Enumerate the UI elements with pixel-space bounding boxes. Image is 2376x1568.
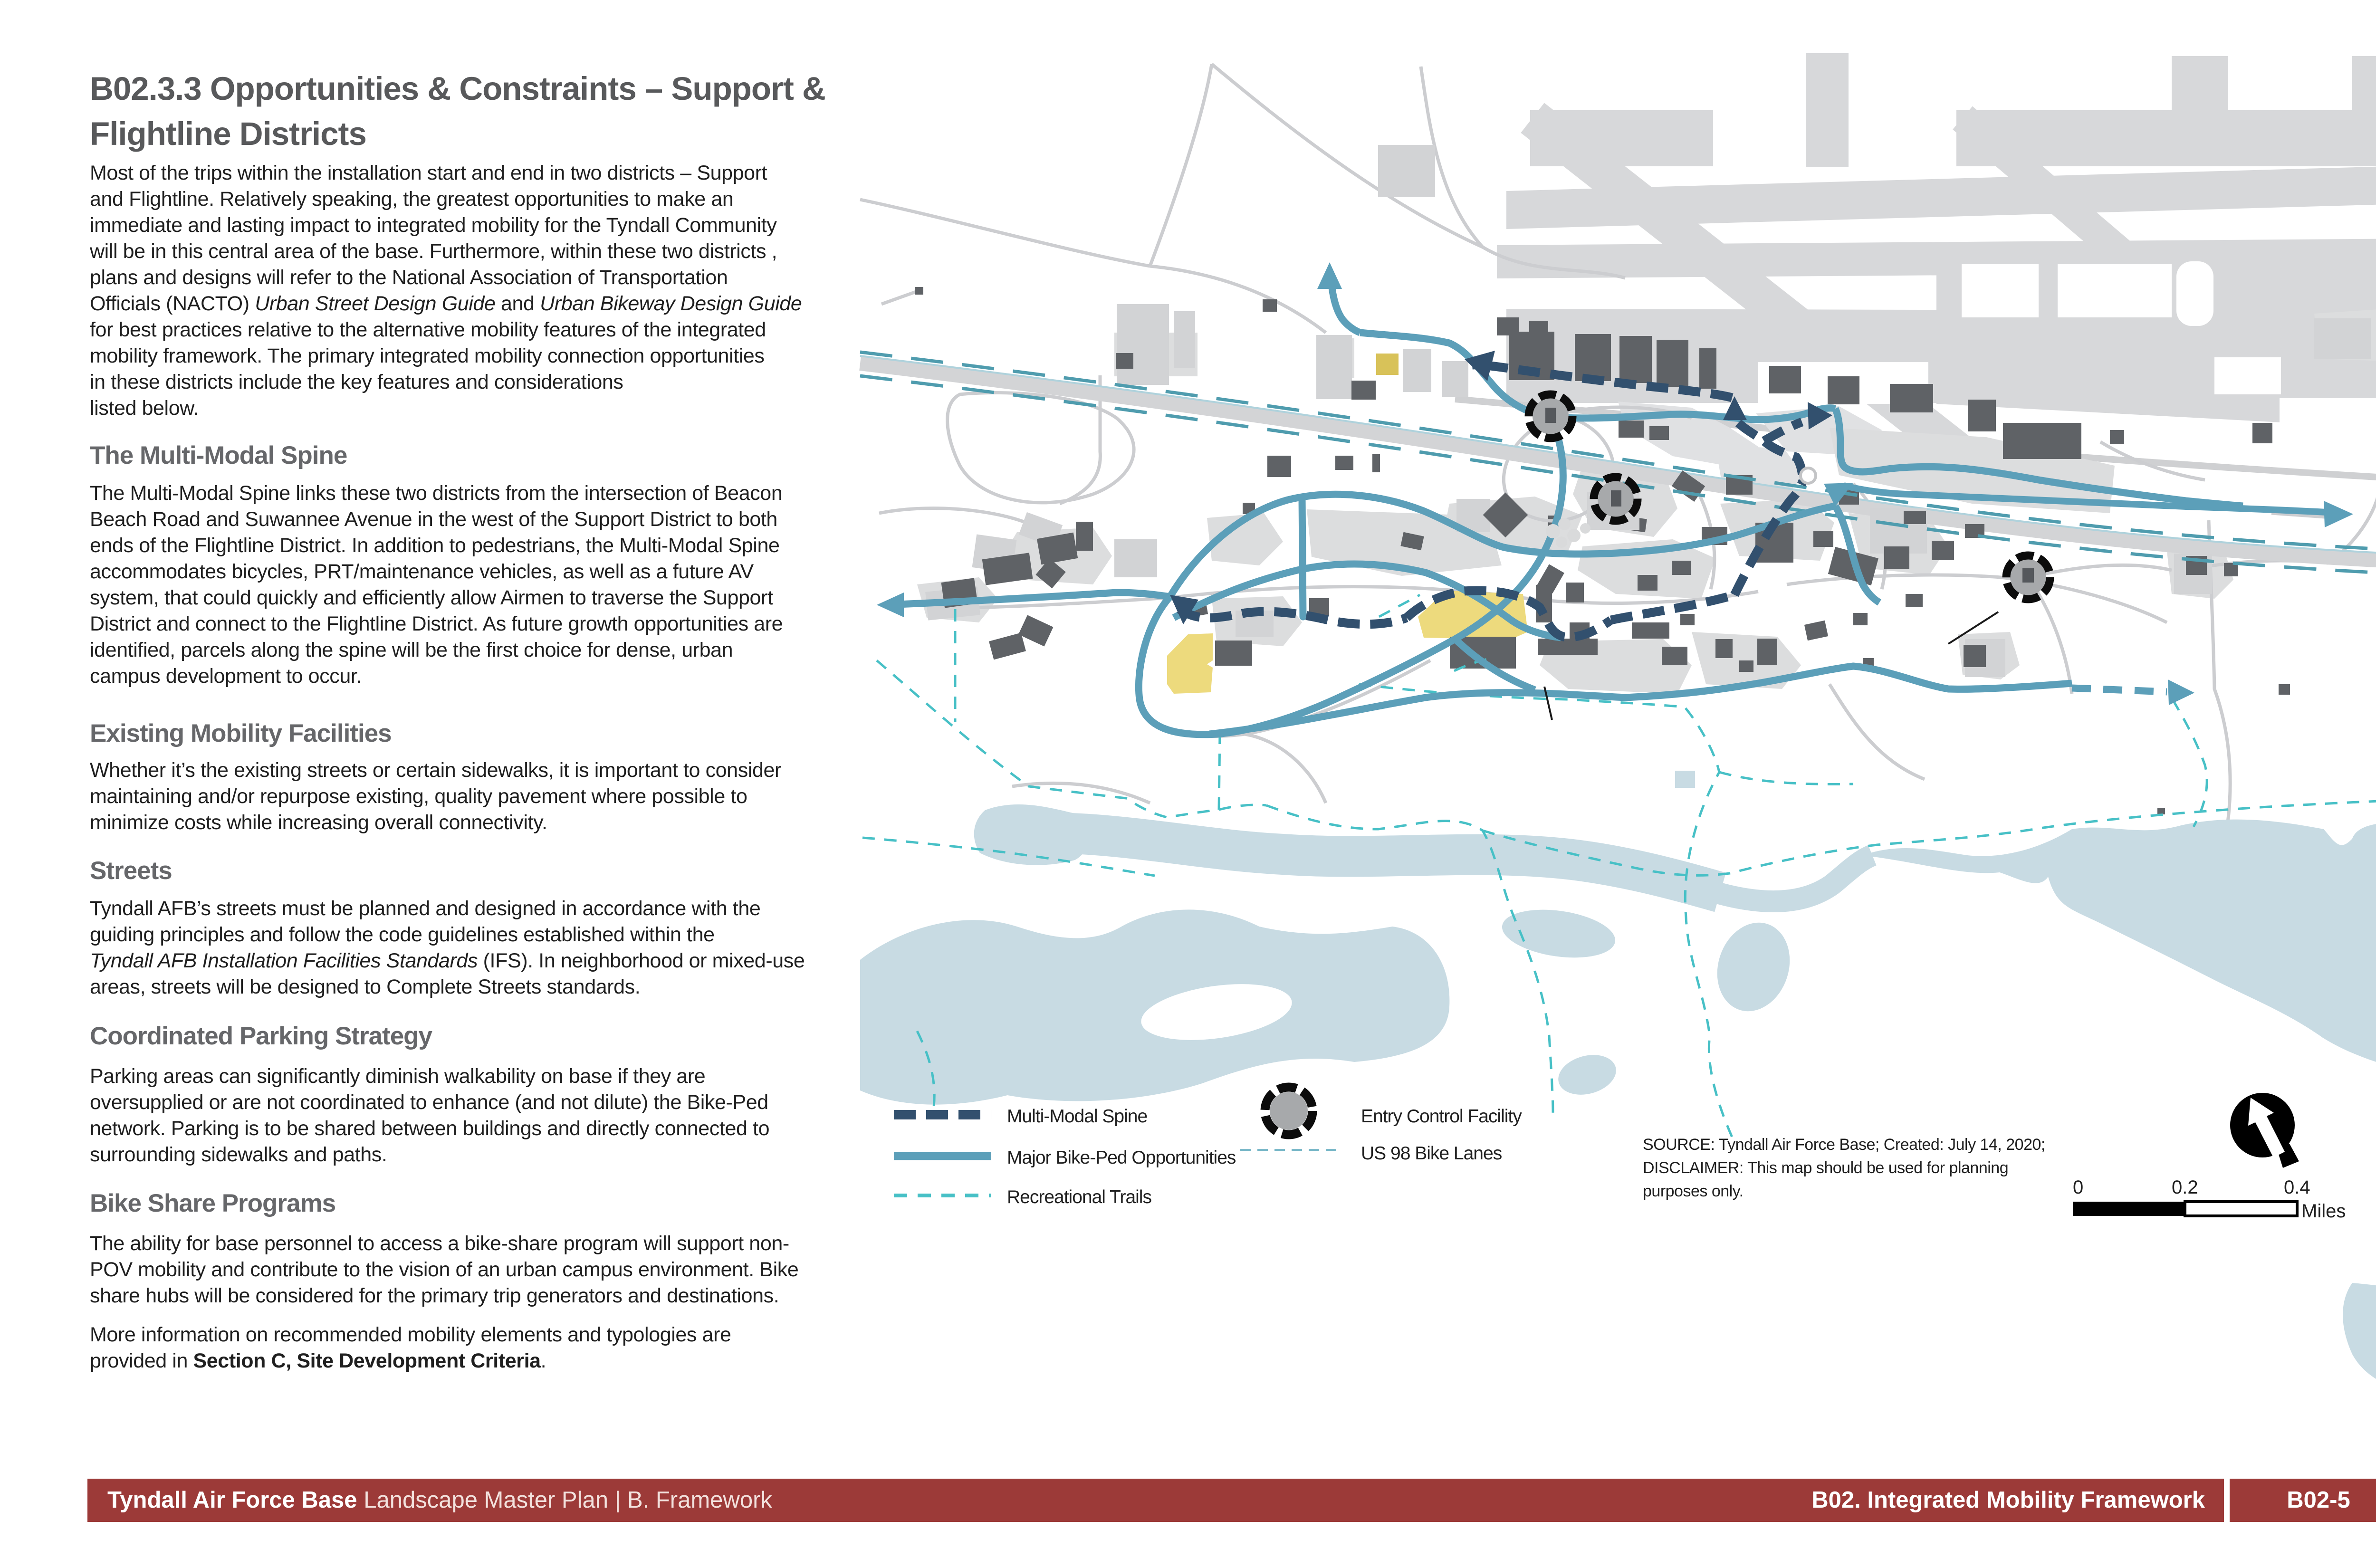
svg-text:US 98 Bike Lanes: US 98 Bike Lanes	[1361, 1143, 1502, 1164]
svg-text:Multi-Modal Spine: Multi-Modal Spine	[1007, 1106, 1147, 1127]
svg-text:DISCLAIMER: This map should be: DISCLAIMER: This map should be used for …	[1643, 1159, 2008, 1177]
svg-text:SOURCE: Tyndall Air Force Base: SOURCE: Tyndall Air Force Base; Created:…	[1643, 1136, 2045, 1154]
svg-text:0: 0	[2073, 1177, 2083, 1198]
svg-text:0.4: 0.4	[2284, 1177, 2310, 1198]
svg-text:Recreational Trails: Recreational Trails	[1007, 1187, 1151, 1207]
svg-text:Miles: Miles	[2301, 1201, 2346, 1222]
svg-text:Entry Control Facility: Entry Control Facility	[1361, 1106, 1522, 1127]
svg-text:0.2: 0.2	[2172, 1177, 2198, 1198]
svg-text:Major Bike-Ped Opportunities: Major Bike-Ped Opportunities	[1007, 1147, 1236, 1168]
svg-text:purposes only.: purposes only.	[1643, 1182, 1744, 1200]
